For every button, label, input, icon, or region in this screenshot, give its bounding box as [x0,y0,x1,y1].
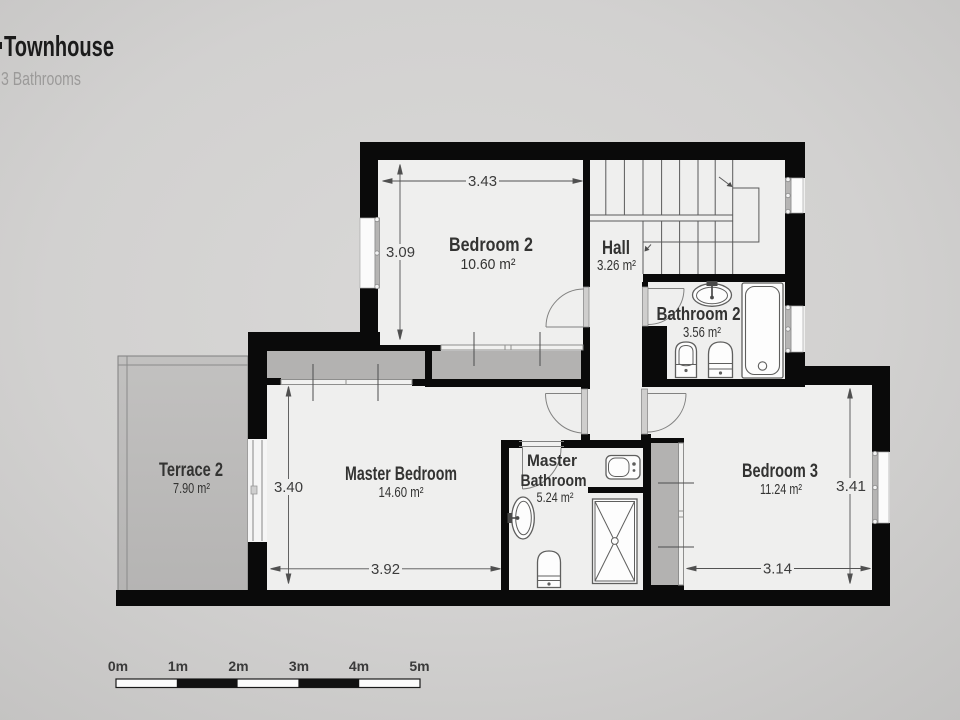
svg-text:3m: 3m [289,658,309,674]
svg-text:3.26 m²: 3.26 m² [597,258,636,274]
svg-text:3.09: 3.09 [386,245,415,261]
svg-text:1m: 1m [168,658,188,674]
svg-text:4m: 4m [349,658,369,674]
svg-text:3.92: 3.92 [371,562,400,578]
svg-text:10.60 m²: 10.60 m² [461,256,516,273]
svg-text:5m: 5m [409,658,429,674]
svg-text:Master Bedroom: Master Bedroom [345,464,457,485]
svg-text:Bathroom 2: Bathroom 2 [657,304,741,324]
svg-text:Townhouse: Townhouse [4,31,114,63]
svg-text:Terrace 2: Terrace 2 [159,460,223,481]
svg-text:Bedroom 2: Bedroom 2 [449,235,533,256]
svg-text:3 Bathrooms: 3 Bathrooms [1,69,81,89]
svg-text:Master: Master [527,451,577,470]
svg-text:14.60 m²: 14.60 m² [379,485,424,501]
svg-text:Bathroom: Bathroom [521,471,587,490]
svg-text:Hall: Hall [602,238,630,259]
svg-text:0m: 0m [108,658,128,674]
svg-text:3.41: 3.41 [836,479,866,495]
svg-text:5.24 m²: 5.24 m² [537,489,574,505]
svg-text:2m: 2m [228,658,248,674]
svg-text:11.24 m²: 11.24 m² [760,482,802,498]
svg-text:7.90 m²: 7.90 m² [173,481,210,497]
svg-text:3.43: 3.43 [468,174,497,190]
svg-text:Bedroom 3: Bedroom 3 [742,461,818,482]
svg-text:3.56 m²: 3.56 m² [683,325,721,341]
svg-text:3.40: 3.40 [274,480,303,496]
svg-text:3.14: 3.14 [763,562,792,578]
